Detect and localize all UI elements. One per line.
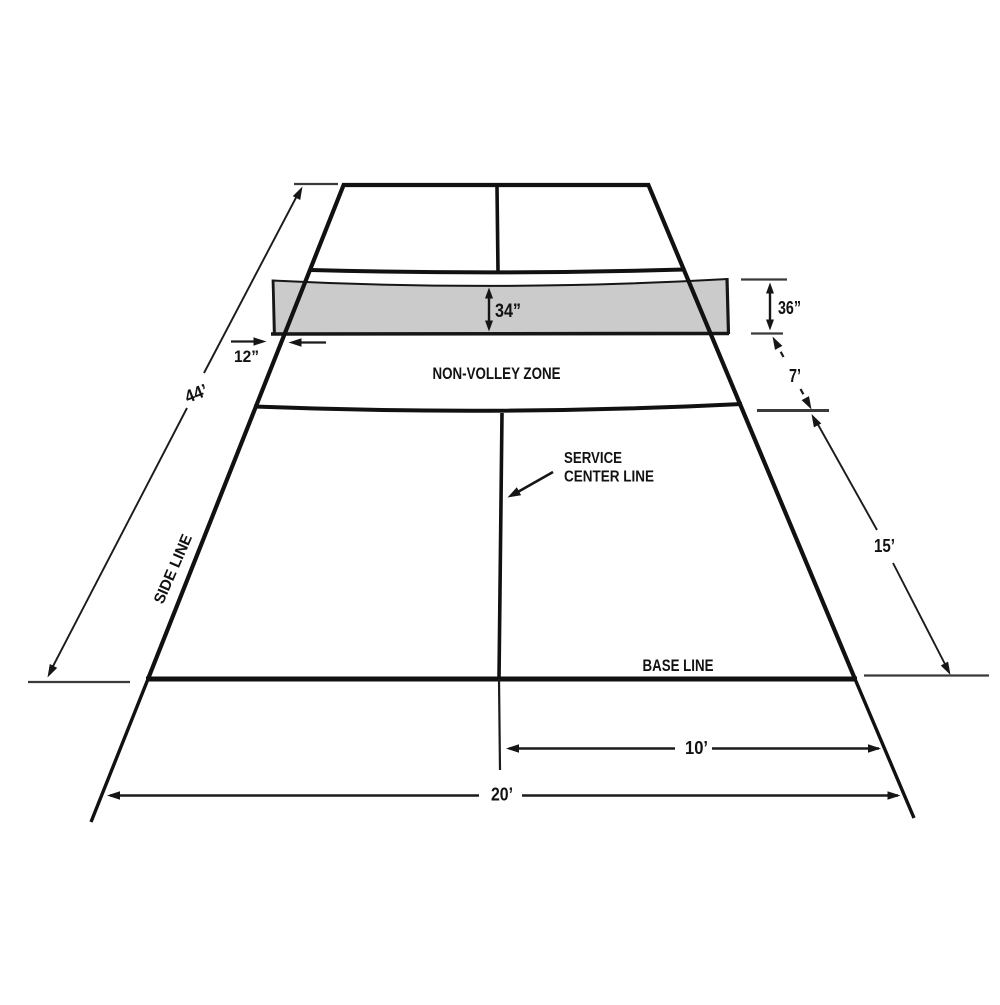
svg-text:12”: 12” <box>234 347 259 366</box>
svg-text:10’: 10’ <box>685 738 708 758</box>
svg-text:BASE LINE: BASE LINE <box>643 657 714 675</box>
svg-text:34”: 34” <box>495 301 521 322</box>
svg-text:SERVICE: SERVICE <box>564 450 622 467</box>
svg-text:36”: 36” <box>778 298 801 318</box>
svg-text:CENTER LINE: CENTER LINE <box>564 469 654 486</box>
svg-text:15’: 15’ <box>874 536 895 556</box>
svg-text:NON-VOLLEY ZONE: NON-VOLLEY ZONE <box>433 365 561 383</box>
svg-text:20’: 20’ <box>491 785 513 805</box>
svg-text:44’: 44’ <box>182 380 211 407</box>
svg-text:7’: 7’ <box>789 366 801 386</box>
